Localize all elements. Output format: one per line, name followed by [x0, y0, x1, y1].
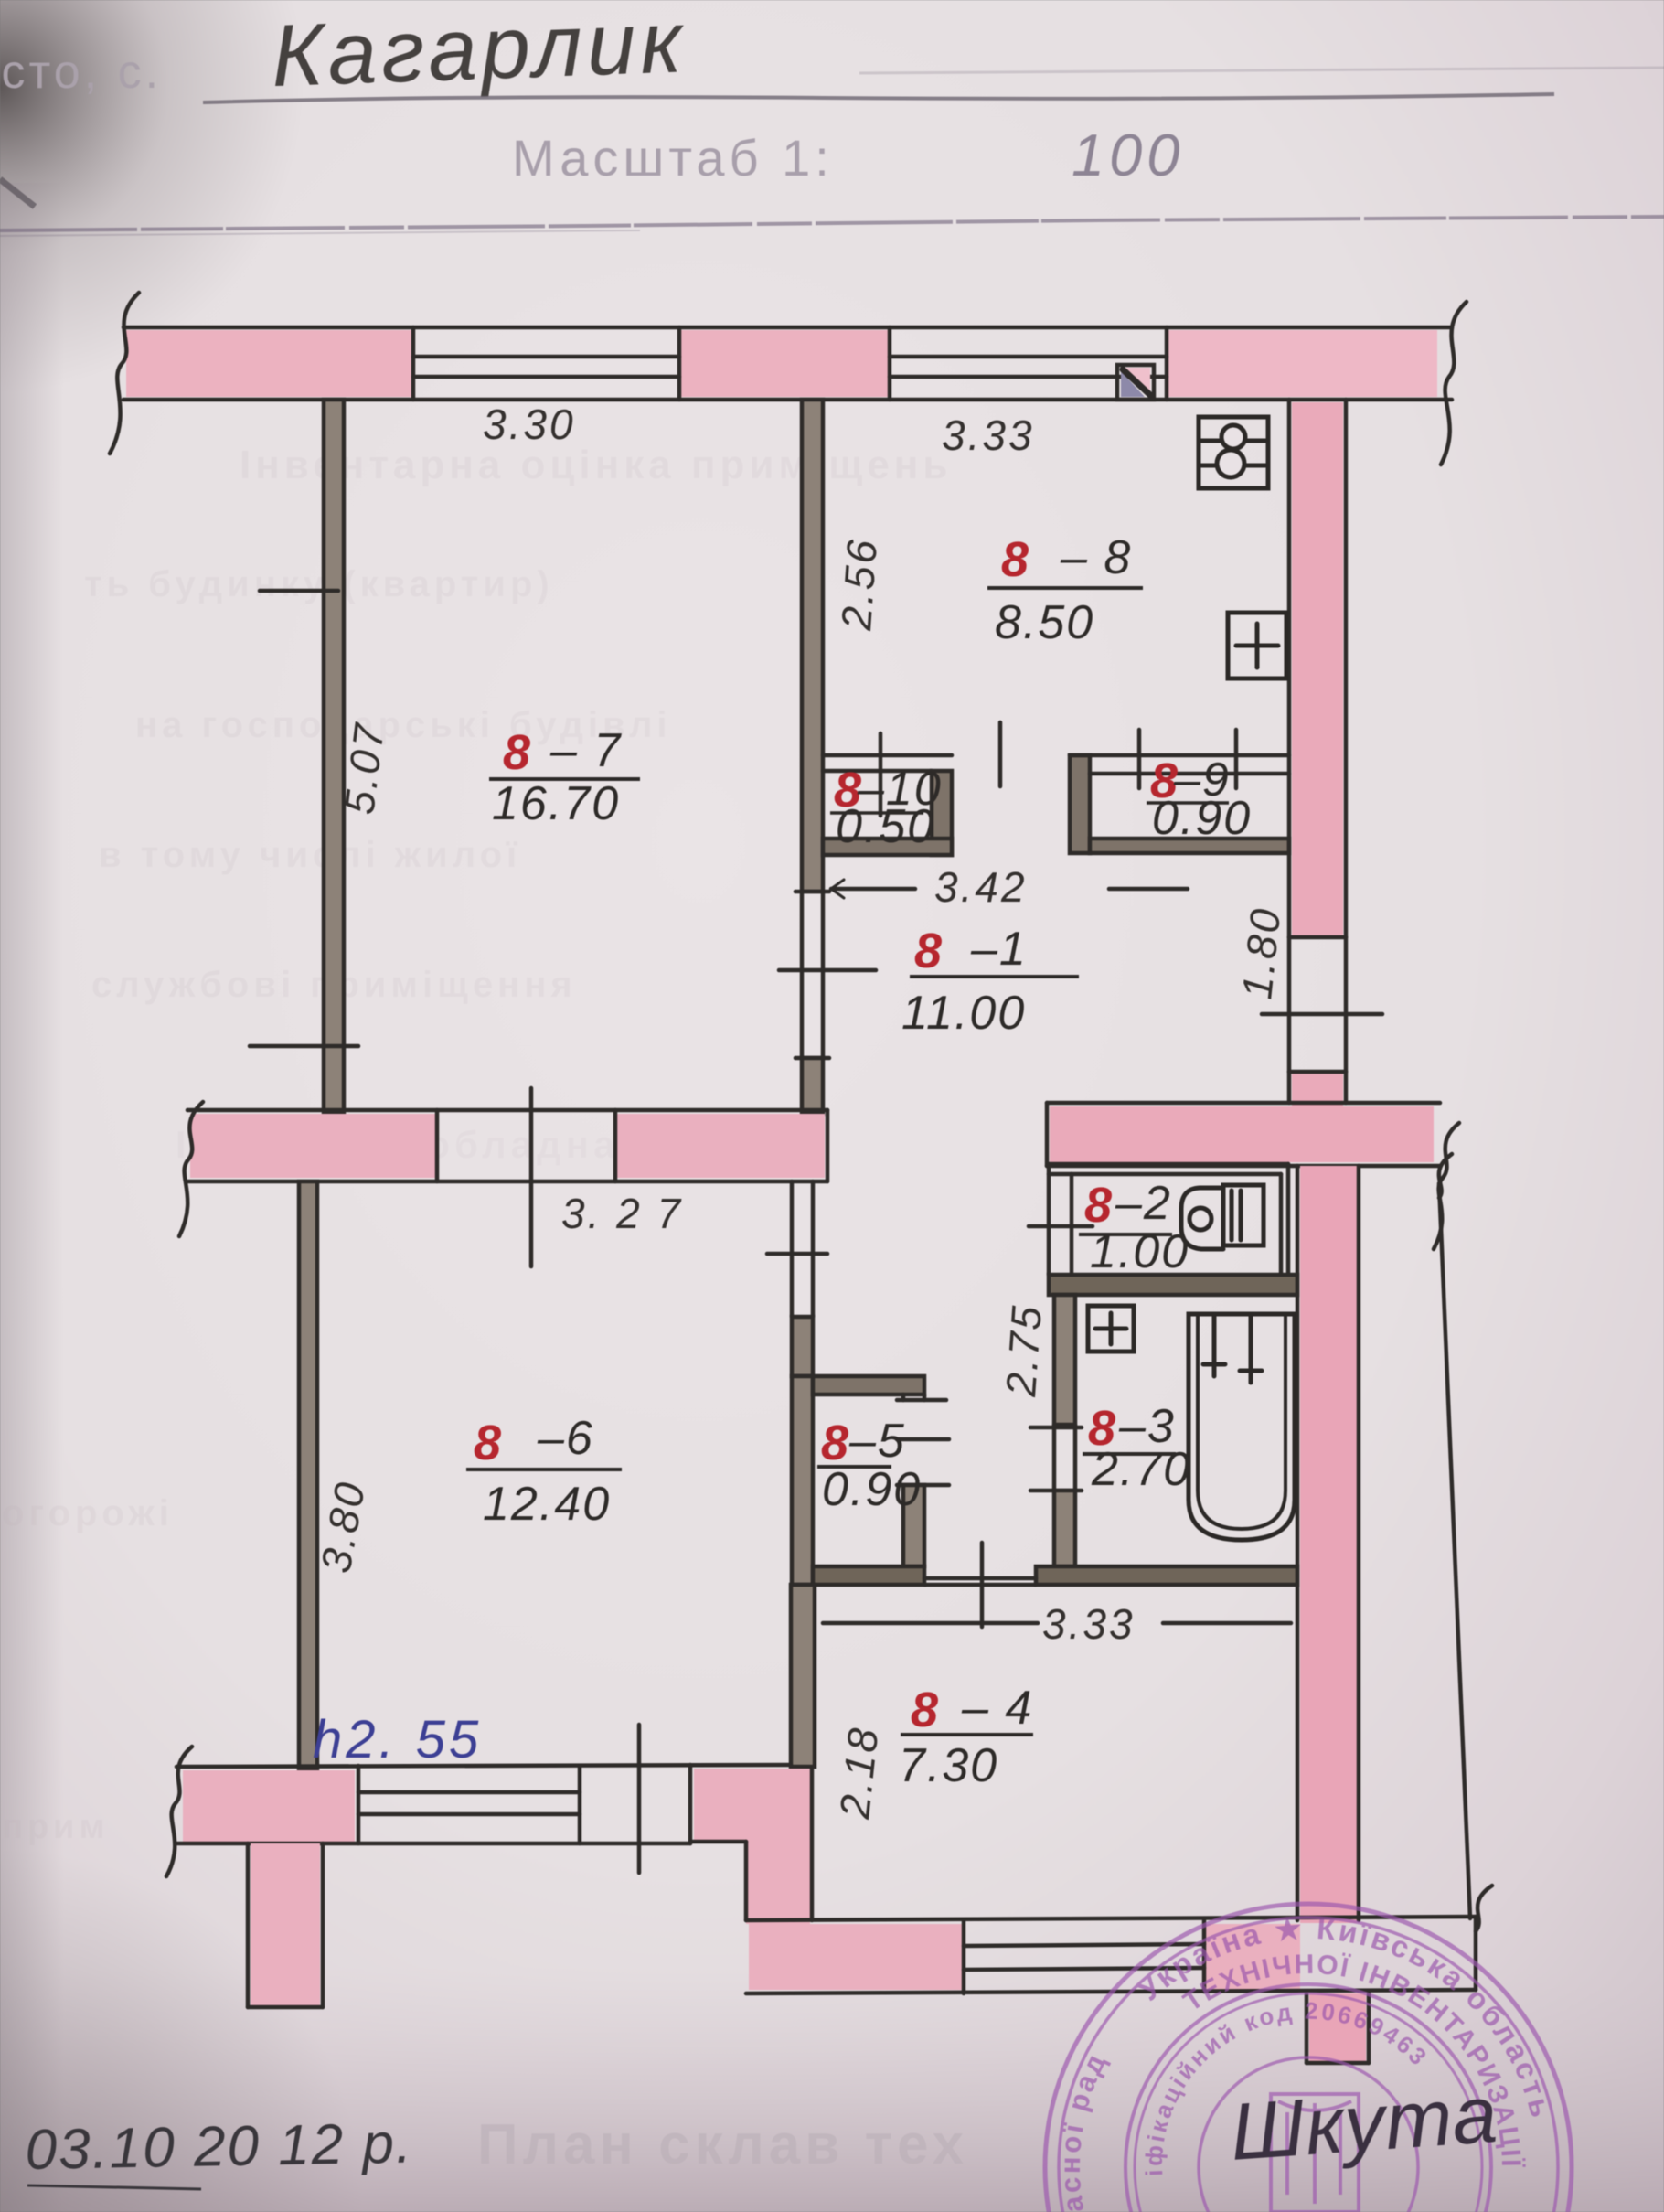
- svg-text:8: 8: [474, 1416, 501, 1470]
- svg-text:8: 8: [911, 1683, 938, 1737]
- svg-text:огорожі: огорожі: [2, 1493, 174, 1533]
- svg-text:істо, с.: істо, с.: [0, 46, 162, 99]
- svg-text:2.18: 2.18: [830, 1724, 887, 1822]
- svg-text:3.42: 3.42: [934, 863, 1028, 911]
- svg-text:3.30: 3.30: [483, 401, 576, 448]
- svg-text:1.80: 1.80: [1232, 904, 1289, 1001]
- svg-text:–6: –6: [537, 1412, 594, 1465]
- svg-text:3.33: 3.33: [942, 411, 1035, 459]
- svg-text:Масштаб 1:: Масштаб 1:: [512, 129, 834, 187]
- svg-text:8: 8: [1001, 532, 1029, 587]
- svg-text:в тому числі жилої: в тому числі жилої: [99, 835, 521, 875]
- svg-text:прим: прим: [2, 1808, 110, 1846]
- svg-text:0.90: 0.90: [822, 1463, 922, 1516]
- svg-text:Інвентарна оцінка приміщень: Інвентарна оцінка приміщень: [240, 443, 952, 487]
- svg-text:7.30: 7.30: [899, 1739, 998, 1792]
- svg-text:8: 8: [503, 725, 530, 780]
- svg-text:8.50: 8.50: [995, 596, 1094, 649]
- svg-text:– 4: – 4: [961, 1682, 1033, 1735]
- svg-text:Кагарлик: Кагарлик: [270, 0, 688, 105]
- svg-text:11.00: 11.00: [901, 987, 1026, 1040]
- svg-text:2.70: 2.70: [1091, 1443, 1191, 1496]
- svg-text:h2. 55: h2. 55: [313, 1710, 482, 1769]
- svg-text:–1: –1: [970, 923, 1028, 976]
- svg-text:16.70: 16.70: [492, 777, 620, 830]
- svg-text:03.10 20 12 р.: 03.10 20 12 р.: [25, 2112, 414, 2182]
- svg-text:0.90: 0.90: [1152, 792, 1252, 845]
- svg-text:2.75: 2.75: [997, 1302, 1051, 1399]
- svg-text:12.40: 12.40: [483, 1478, 611, 1531]
- svg-text:3.33: 3.33: [1042, 1600, 1136, 1648]
- svg-text:1.00: 1.00: [1090, 1225, 1189, 1278]
- svg-text:3. 2 7: 3. 2 7: [561, 1190, 683, 1237]
- svg-text:–5: –5: [848, 1415, 906, 1468]
- svg-text:Шкута: Шкута: [1227, 2068, 1500, 2177]
- svg-text:8: 8: [1084, 1178, 1112, 1233]
- svg-text:8: 8: [914, 924, 942, 978]
- svg-text:– 8: – 8: [1060, 531, 1132, 584]
- svg-text:–2: –2: [1115, 1177, 1172, 1230]
- svg-text:8: 8: [821, 1416, 848, 1470]
- svg-text:2.56: 2.56: [832, 536, 886, 633]
- svg-text:0.50: 0.50: [836, 800, 935, 853]
- svg-text:– 7: – 7: [549, 724, 622, 777]
- svg-text:ть будинку (квартир): ть будинку (квартир): [84, 564, 554, 604]
- svg-text:100: 100: [1072, 122, 1184, 188]
- svg-text:План склав тех: План склав тех: [477, 2113, 968, 2176]
